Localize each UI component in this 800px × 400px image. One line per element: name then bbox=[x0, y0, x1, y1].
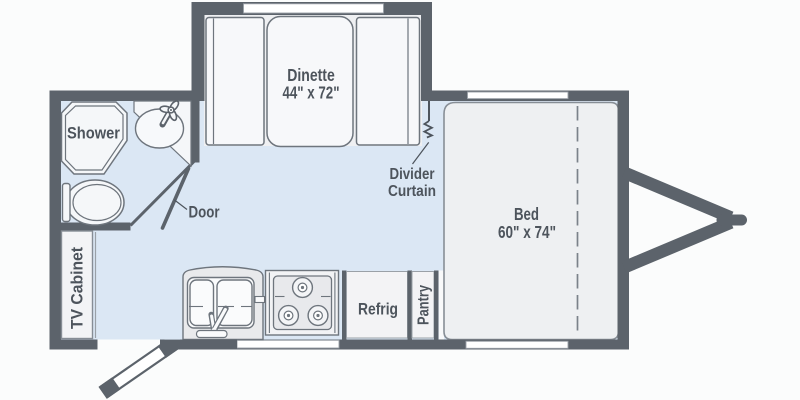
svg-text:60" x 74": 60" x 74" bbox=[498, 222, 556, 242]
svg-text:Door: Door bbox=[189, 204, 220, 222]
svg-text:Bed: Bed bbox=[514, 204, 539, 224]
svg-text:TV Cabinet: TV Cabinet bbox=[69, 247, 87, 329]
svg-text:Refrig: Refrig bbox=[358, 301, 398, 319]
svg-text:Pantry: Pantry bbox=[416, 285, 433, 325]
svg-text:44" x 72": 44" x 72" bbox=[283, 83, 340, 103]
svg-text:Curtain: Curtain bbox=[388, 183, 436, 200]
svg-text:Shower: Shower bbox=[67, 125, 121, 143]
svg-text:Divider: Divider bbox=[390, 166, 435, 183]
